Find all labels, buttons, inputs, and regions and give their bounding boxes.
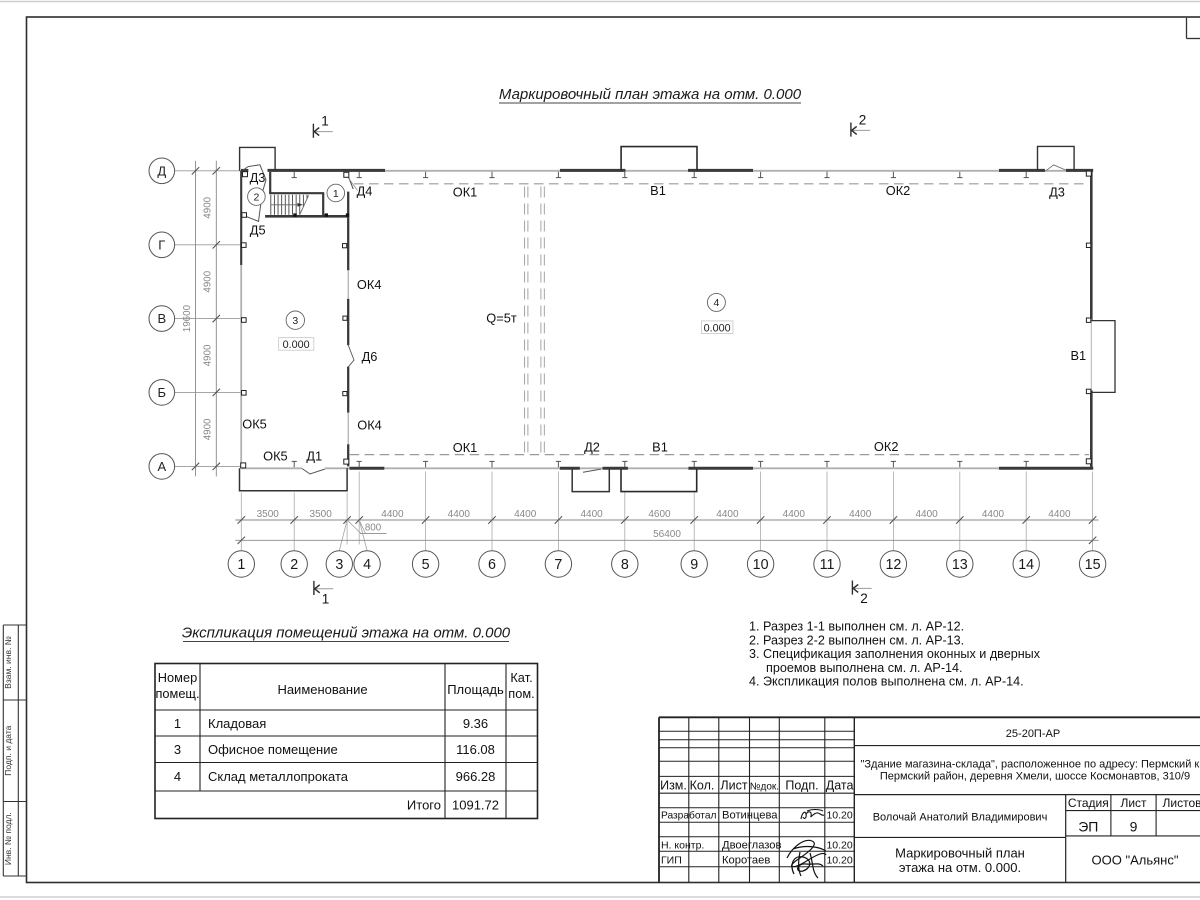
svg-text:Г: Г	[158, 237, 165, 252]
svg-text:Д5: Д5	[250, 223, 266, 238]
svg-text:ОК5: ОК5	[263, 449, 288, 464]
svg-text:0.000: 0.000	[704, 322, 731, 334]
svg-text:Двоеглазов: Двоеглазов	[722, 840, 782, 852]
svg-text:25-20П-АР: 25-20П-АР	[1006, 728, 1060, 740]
svg-text:9: 9	[1130, 819, 1138, 835]
svg-text:7: 7	[554, 557, 562, 573]
svg-text:9: 9	[690, 557, 698, 573]
svg-text:Итого: Итого	[407, 797, 441, 812]
svg-text:1: 1	[237, 557, 245, 573]
svg-text:4: 4	[174, 769, 181, 784]
svg-text:Стадия: Стадия	[1068, 796, 1109, 810]
svg-text:В1: В1	[652, 439, 668, 454]
svg-text:Пермский район, деревня Хмели,: Пермский район, деревня Хмели, шоссе Кос…	[880, 771, 1190, 783]
svg-text:ОК1: ОК1	[453, 185, 478, 200]
svg-text:10.20: 10.20	[826, 854, 852, 866]
svg-text:ОК2: ОК2	[874, 439, 899, 454]
svg-text:4400: 4400	[783, 509, 806, 520]
svg-text:Лист: Лист	[720, 778, 747, 792]
svg-text:2: 2	[859, 113, 867, 128]
svg-text:4400: 4400	[580, 509, 603, 520]
svg-text:Коротаев: Коротаев	[722, 854, 770, 866]
svg-text:Д2: Д2	[584, 439, 600, 454]
svg-text:Д1: Д1	[306, 449, 322, 464]
svg-text:5: 5	[422, 557, 430, 573]
svg-text:4900: 4900	[202, 196, 213, 218]
svg-text:"Здание магазина-склада", расп: "Здание магазина-склада", расположенное …	[861, 759, 1200, 771]
svg-text:966.28: 966.28	[456, 769, 496, 784]
svg-text:В: В	[157, 311, 166, 326]
svg-text:1091.72: 1091.72	[452, 797, 499, 812]
svg-text:3: 3	[292, 315, 298, 327]
svg-text:800: 800	[365, 523, 382, 534]
svg-text:4400: 4400	[381, 509, 404, 520]
svg-text:Д: Д	[157, 163, 166, 178]
svg-text:4600: 4600	[648, 509, 671, 520]
svg-text:ОК4: ОК4	[357, 277, 382, 292]
svg-text:1: 1	[333, 188, 339, 200]
svg-text:9.36: 9.36	[463, 716, 488, 731]
svg-text:10: 10	[753, 557, 769, 573]
svg-text:Кол.: Кол.	[690, 778, 715, 792]
svg-text:8: 8	[621, 557, 629, 573]
svg-text:4: 4	[363, 557, 371, 573]
svg-text:Н. контр.: Н. контр.	[661, 840, 704, 852]
svg-text:12: 12	[885, 557, 901, 573]
svg-text:Б: Б	[158, 385, 167, 400]
svg-text:4900: 4900	[202, 418, 213, 440]
svg-text:ОК2: ОК2	[886, 183, 911, 198]
svg-text:116.08: 116.08	[456, 742, 495, 757]
svg-text:10.20: 10.20	[826, 810, 852, 822]
svg-text:4400: 4400	[514, 509, 537, 520]
svg-text:10.20: 10.20	[826, 840, 852, 852]
svg-text:Д3: Д3	[250, 170, 266, 185]
svg-text:Изм.: Изм.	[660, 778, 687, 792]
svg-text:этажа на отм. 0.000.: этажа на отм. 0.000.	[899, 860, 1021, 875]
svg-text:Лист: Лист	[1120, 796, 1147, 810]
svg-text:2: 2	[290, 557, 298, 573]
svg-text:Кат.: Кат.	[510, 670, 532, 685]
svg-text:Экспликация помещений этажа на: Экспликация помещений этажа на отм. 0.00…	[182, 625, 511, 642]
svg-text:3: 3	[335, 557, 343, 573]
svg-text:1: 1	[174, 716, 181, 731]
svg-text:4400: 4400	[849, 509, 872, 520]
svg-text:Склад металлопроката: Склад металлопроката	[208, 769, 349, 784]
svg-text:2: 2	[860, 591, 868, 606]
svg-text:1: 1	[321, 114, 329, 129]
svg-text:0.000: 0.000	[283, 339, 310, 351]
svg-text:3500: 3500	[257, 509, 280, 520]
svg-text:1: 1	[322, 592, 330, 607]
svg-text:Маркировочный план этажа на от: Маркировочный план этажа на отм. 0.000	[499, 86, 802, 103]
svg-text:ЭП: ЭП	[1078, 819, 1098, 835]
svg-text:№док.: №док.	[750, 782, 779, 793]
svg-text:Д4: Д4	[357, 184, 373, 199]
svg-text:56400: 56400	[653, 529, 681, 540]
svg-text:4400: 4400	[716, 509, 739, 520]
svg-text:Наименование: Наименование	[277, 682, 367, 697]
svg-text:4900: 4900	[202, 270, 213, 292]
svg-text:4900: 4900	[202, 344, 213, 366]
svg-text:11: 11	[820, 557, 835, 573]
svg-text:4400: 4400	[982, 509, 1005, 520]
svg-text:ГИП: ГИП	[661, 854, 682, 866]
svg-text:1. Разрез 1-1 выполнен см. л.: 1. Разрез 1-1 выполнен см. л. АР-12.	[749, 620, 964, 634]
svg-text:ОК4: ОК4	[357, 418, 382, 433]
svg-text:Площадь: Площадь	[447, 682, 504, 697]
svg-text:13: 13	[952, 557, 968, 573]
svg-text:А: А	[157, 459, 166, 474]
svg-text:В1: В1	[650, 183, 666, 198]
svg-text:В1: В1	[1070, 348, 1086, 363]
svg-text:Кладовая: Кладовая	[208, 716, 266, 731]
svg-text:2: 2	[253, 191, 259, 203]
svg-text:Д3: Д3	[1049, 184, 1065, 199]
svg-text:ООО "Альянс": ООО "Альянс"	[1092, 853, 1179, 868]
svg-text:Вотинцева: Вотинцева	[722, 810, 778, 822]
svg-text:Взам. инв. №: Взам. инв. №	[3, 636, 13, 689]
svg-text:4: 4	[713, 297, 719, 309]
svg-text:2. Разрез 2-2 выполнен см. л.: 2. Разрез 2-2 выполнен см. л. АР-13.	[749, 633, 964, 647]
svg-text:ОК1: ОК1	[453, 440, 478, 455]
svg-text:4400: 4400	[448, 509, 471, 520]
svg-text:ОК5: ОК5	[242, 416, 267, 431]
svg-text:19600: 19600	[182, 304, 193, 332]
svg-text:проемов выполнена см. л. АР-14: проемов выполнена см. л. АР-14.	[766, 661, 963, 675]
svg-text:3: 3	[174, 742, 181, 757]
svg-text:Разработал: Разработал	[661, 810, 717, 822]
svg-text:Офисное помещение: Офисное помещение	[208, 742, 338, 757]
svg-text:Q=5т: Q=5т	[486, 310, 517, 325]
svg-text:3500: 3500	[310, 509, 333, 520]
svg-text:14: 14	[1018, 557, 1034, 573]
svg-text:Волочай Анатолий Владимирович: Волочай Анатолий Владимирович	[873, 812, 1048, 824]
svg-text:4400: 4400	[1048, 509, 1071, 520]
svg-text:Инв. № подл.: Инв. № подл.	[3, 812, 13, 865]
svg-text:Дата: Дата	[826, 778, 854, 792]
svg-text:Листов: Листов	[1163, 796, 1200, 810]
svg-text:пом.: пом.	[508, 686, 534, 701]
svg-text:Маркировочный план: Маркировочный план	[895, 846, 1025, 861]
svg-text:3. Спецификация заполнения око: 3. Спецификация заполнения оконных и две…	[749, 647, 1041, 661]
svg-text:Подп.: Подп.	[785, 778, 818, 792]
svg-text:Д6: Д6	[362, 349, 378, 364]
svg-text:помещ.: помещ.	[155, 686, 199, 701]
svg-text:Подп. и дата: Подп. и дата	[3, 725, 13, 775]
svg-text:Номер: Номер	[158, 670, 197, 685]
svg-text:4. Экспликация полов выполнена: 4. Экспликация полов выполнена см. л. АР…	[749, 675, 1024, 689]
svg-text:4400: 4400	[915, 509, 938, 520]
svg-text:6: 6	[488, 557, 496, 573]
svg-text:15: 15	[1085, 557, 1101, 573]
